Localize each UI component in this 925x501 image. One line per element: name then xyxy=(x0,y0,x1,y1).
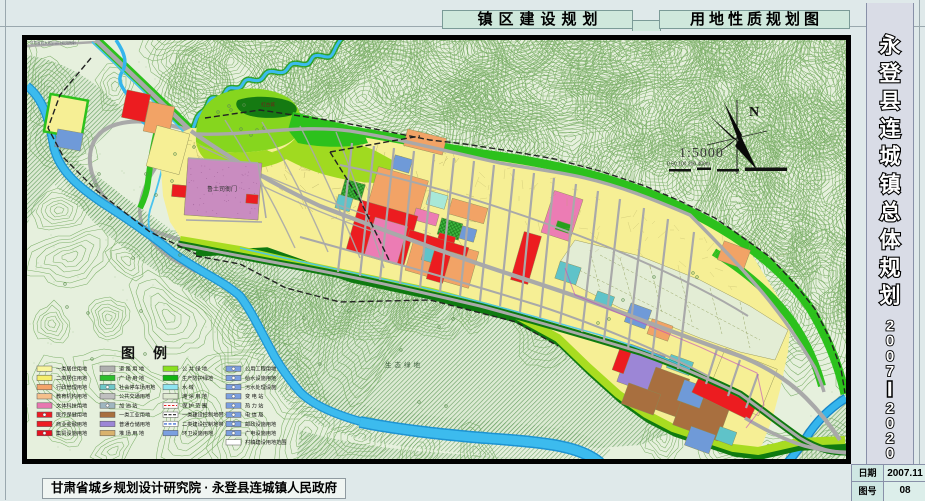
svg-text:道 路 用 地: 道 路 用 地 xyxy=(119,365,144,373)
svg-text:一类建设控制地带: 一类建设控制地带 xyxy=(182,411,224,419)
svg-text:环卫设施用地: 环卫设施用地 xyxy=(182,429,213,437)
svg-text:一类工业用地: 一类工业用地 xyxy=(119,411,150,419)
svg-text:甘肃省城乡规划设计研究院制: 甘肃省城乡规划设计研究院制 xyxy=(30,40,76,45)
svg-text:加 油 站: 加 油 站 xyxy=(119,401,137,409)
svg-text:滩 涂 用 地: 滩 涂 用 地 xyxy=(182,392,207,400)
svg-text:电 信 局: 电 信 局 xyxy=(245,411,263,419)
svg-text:公共交通用地: 公共交通用地 xyxy=(119,392,150,400)
svg-text:给水设施用地: 给水设施用地 xyxy=(245,374,276,382)
svg-text:普通仓储用地: 普通仓储用地 xyxy=(119,420,150,428)
svg-text:图例: 图例 xyxy=(121,345,185,361)
svg-text:生态绿地: 生态绿地 xyxy=(385,360,423,369)
svg-text:堆 场 用 地: 堆 场 用 地 xyxy=(119,429,144,437)
svg-text:二类建设控制地带: 二类建设控制地带 xyxy=(182,420,224,428)
svg-text:一类居住用地: 一类居住用地 xyxy=(56,365,87,373)
svg-text:村镇建设用地范围: 村镇建设用地范围 xyxy=(245,438,287,446)
svg-text:1:5000: 1:5000 xyxy=(679,146,724,161)
svg-text:公 共 绿 地: 公 共 绿 地 xyxy=(182,365,207,373)
svg-text:污水处理设施: 污水处理设施 xyxy=(245,383,276,391)
svg-text:公用工程用地: 公用工程用地 xyxy=(245,365,276,373)
svg-text:保 护 范 围: 保 护 范 围 xyxy=(182,401,207,409)
svg-text:广电设施用地: 广电设施用地 xyxy=(245,429,276,437)
svg-text:0 50 100 200: 0 50 100 200 400m xyxy=(667,162,710,168)
svg-text:N: N xyxy=(749,105,759,120)
svg-text:行政管理用地: 行政管理用地 xyxy=(56,383,87,391)
svg-text:社会停车场用地: 社会停车场用地 xyxy=(119,383,155,391)
svg-text:热 力 站: 热 力 站 xyxy=(245,401,263,409)
svg-text:水 域: 水 域 xyxy=(182,383,194,391)
svg-text:二类居住用地: 二类居住用地 xyxy=(56,374,87,382)
svg-text:变 电 站: 变 电 站 xyxy=(245,392,263,400)
svg-text:鲁土司衙门: 鲁土司衙门 xyxy=(207,185,237,193)
svg-text:广 场 用 地: 广 场 用 地 xyxy=(119,374,144,382)
svg-text:集贸设施用地: 集贸设施用地 xyxy=(56,429,87,437)
svg-text:生产防护绿地: 生产防护绿地 xyxy=(182,374,213,382)
svg-text:医疗保健用地: 医疗保健用地 xyxy=(56,411,87,419)
svg-text:红古城: 红古城 xyxy=(261,101,275,108)
svg-text:邮政设施用地: 邮政设施用地 xyxy=(245,420,276,428)
svg-text:教育机构用地: 教育机构用地 xyxy=(56,392,87,400)
svg-text:商业金融用地: 商业金融用地 xyxy=(56,420,87,428)
svg-text:文体科技用地: 文体科技用地 xyxy=(56,401,87,409)
